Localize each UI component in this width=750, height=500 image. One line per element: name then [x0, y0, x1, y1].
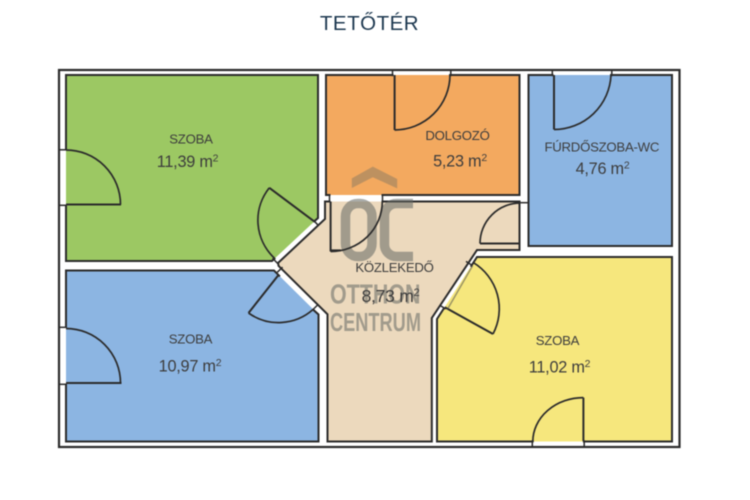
- svg-text:TETŐTÉR: TETŐTÉR: [320, 12, 419, 35]
- svg-text:FÚRDŐSZOBA-WC: FÚRDŐSZOBA-WC: [544, 140, 659, 155]
- svg-text:4,76 m2: 4,76 m2: [576, 160, 630, 179]
- svg-text:5,23 m2: 5,23 m2: [433, 152, 487, 171]
- svg-text:DOLGOZÓ: DOLGOZÓ: [425, 128, 489, 143]
- svg-text:10,97 m2: 10,97 m2: [159, 357, 222, 376]
- svg-text:SZOBA: SZOBA: [536, 333, 580, 348]
- svg-text:11,02 m2: 11,02 m2: [529, 358, 591, 377]
- svg-text:8,73 m2: 8,73 m2: [362, 286, 420, 306]
- svg-text:CENTRUM: CENTRUM: [330, 308, 421, 337]
- svg-text:KÖZLEKEDŐ: KÖZLEKEDŐ: [355, 260, 433, 275]
- svg-text:11,39 m2: 11,39 m2: [157, 153, 219, 172]
- svg-text:SZOBA: SZOBA: [169, 132, 213, 147]
- svg-text:SZOBA: SZOBA: [169, 332, 213, 347]
